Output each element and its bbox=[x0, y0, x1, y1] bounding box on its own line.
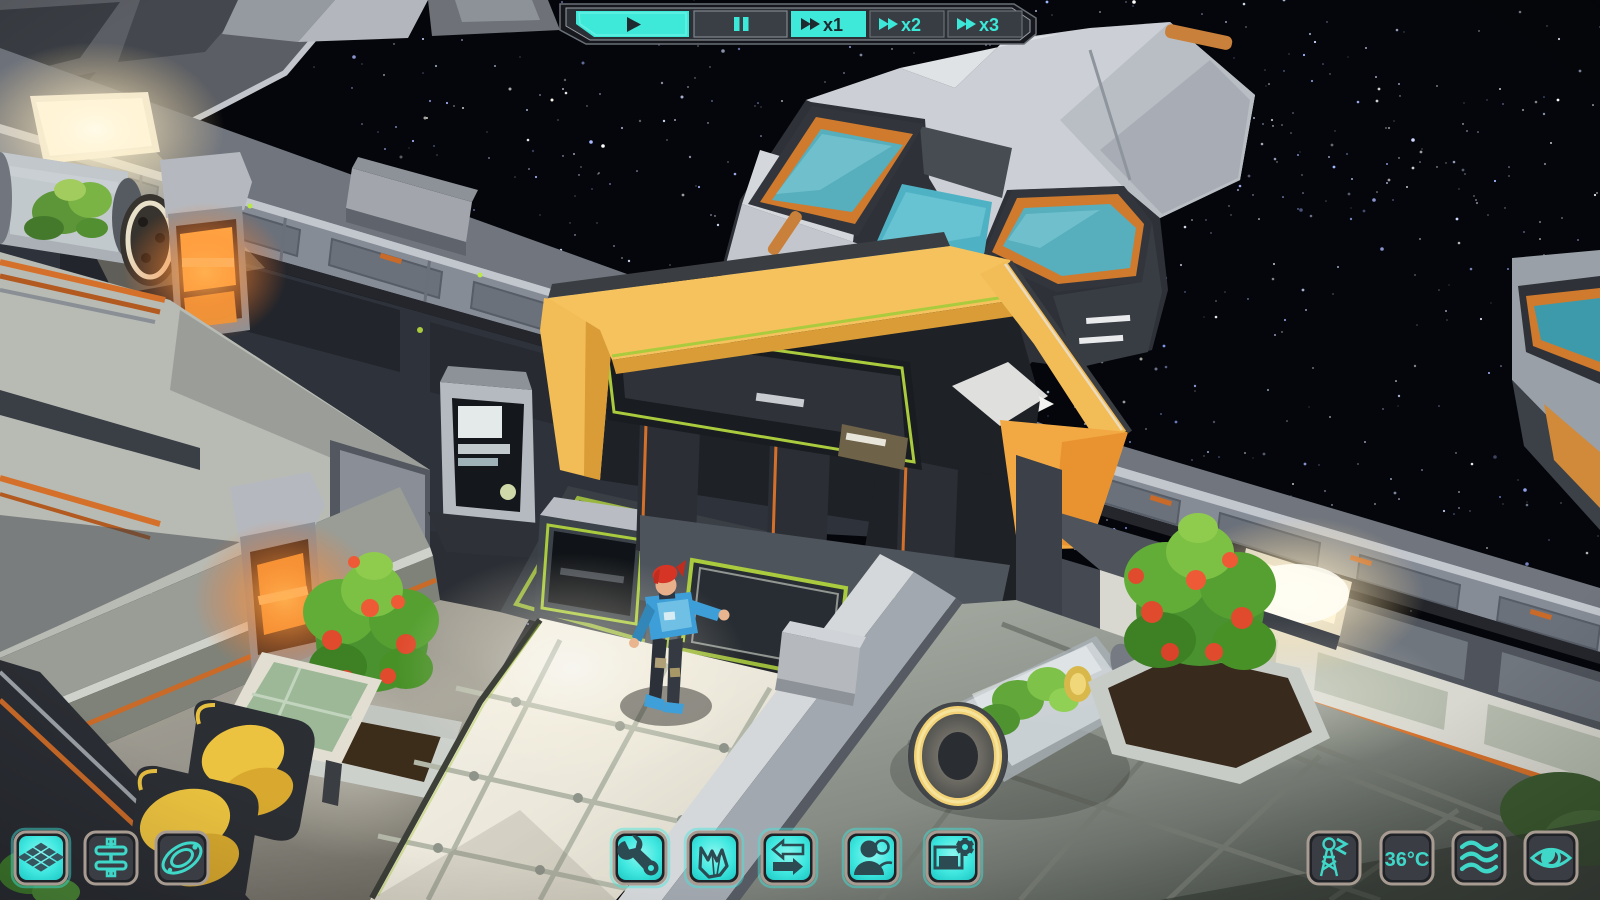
svg-text:36°C: 36°C bbox=[1385, 849, 1430, 871]
svg-text:x3: x3 bbox=[979, 15, 999, 35]
svg-text:x1: x1 bbox=[823, 15, 843, 35]
svg-text:x2: x2 bbox=[901, 15, 921, 35]
